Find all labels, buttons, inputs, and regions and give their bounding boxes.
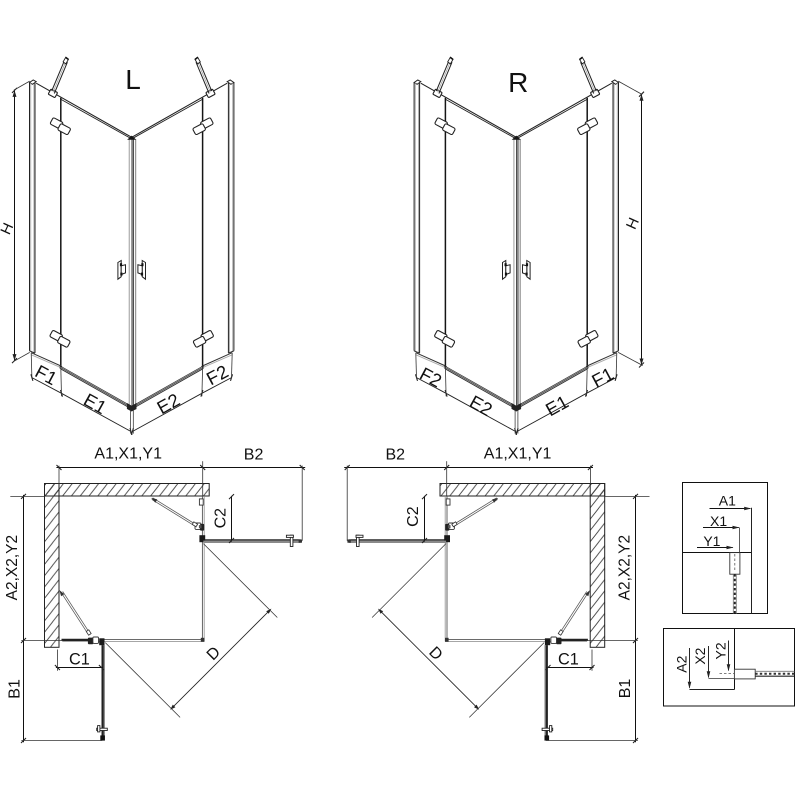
svg-text:B2: B2 <box>244 446 264 463</box>
svg-text:C1: C1 <box>69 650 90 668</box>
svg-text:B1: B1 <box>617 679 634 699</box>
svg-text:B1: B1 <box>6 679 23 699</box>
svg-text:R: R <box>508 67 528 98</box>
svg-text:Y2: Y2 <box>713 642 729 659</box>
svg-text:Y1: Y1 <box>703 533 720 549</box>
svg-text:A2: A2 <box>673 655 689 672</box>
svg-text:A1,X1,Y1: A1,X1,Y1 <box>94 446 162 463</box>
svg-text:C1: C1 <box>558 650 579 668</box>
svg-text:X2: X2 <box>692 647 708 664</box>
svg-text:X1: X1 <box>710 513 727 529</box>
svg-text:A1,X1,Y1: A1,X1,Y1 <box>484 446 552 463</box>
svg-text:A2,X2,Y2: A2,X2,Y2 <box>4 535 21 601</box>
svg-text:A2,X2,Y2: A2,X2,Y2 <box>617 535 634 601</box>
svg-text:L: L <box>125 64 141 95</box>
svg-text:C2: C2 <box>405 506 422 527</box>
svg-text:A1: A1 <box>719 493 736 509</box>
svg-text:C2: C2 <box>212 508 229 529</box>
svg-text:B2: B2 <box>386 446 406 463</box>
